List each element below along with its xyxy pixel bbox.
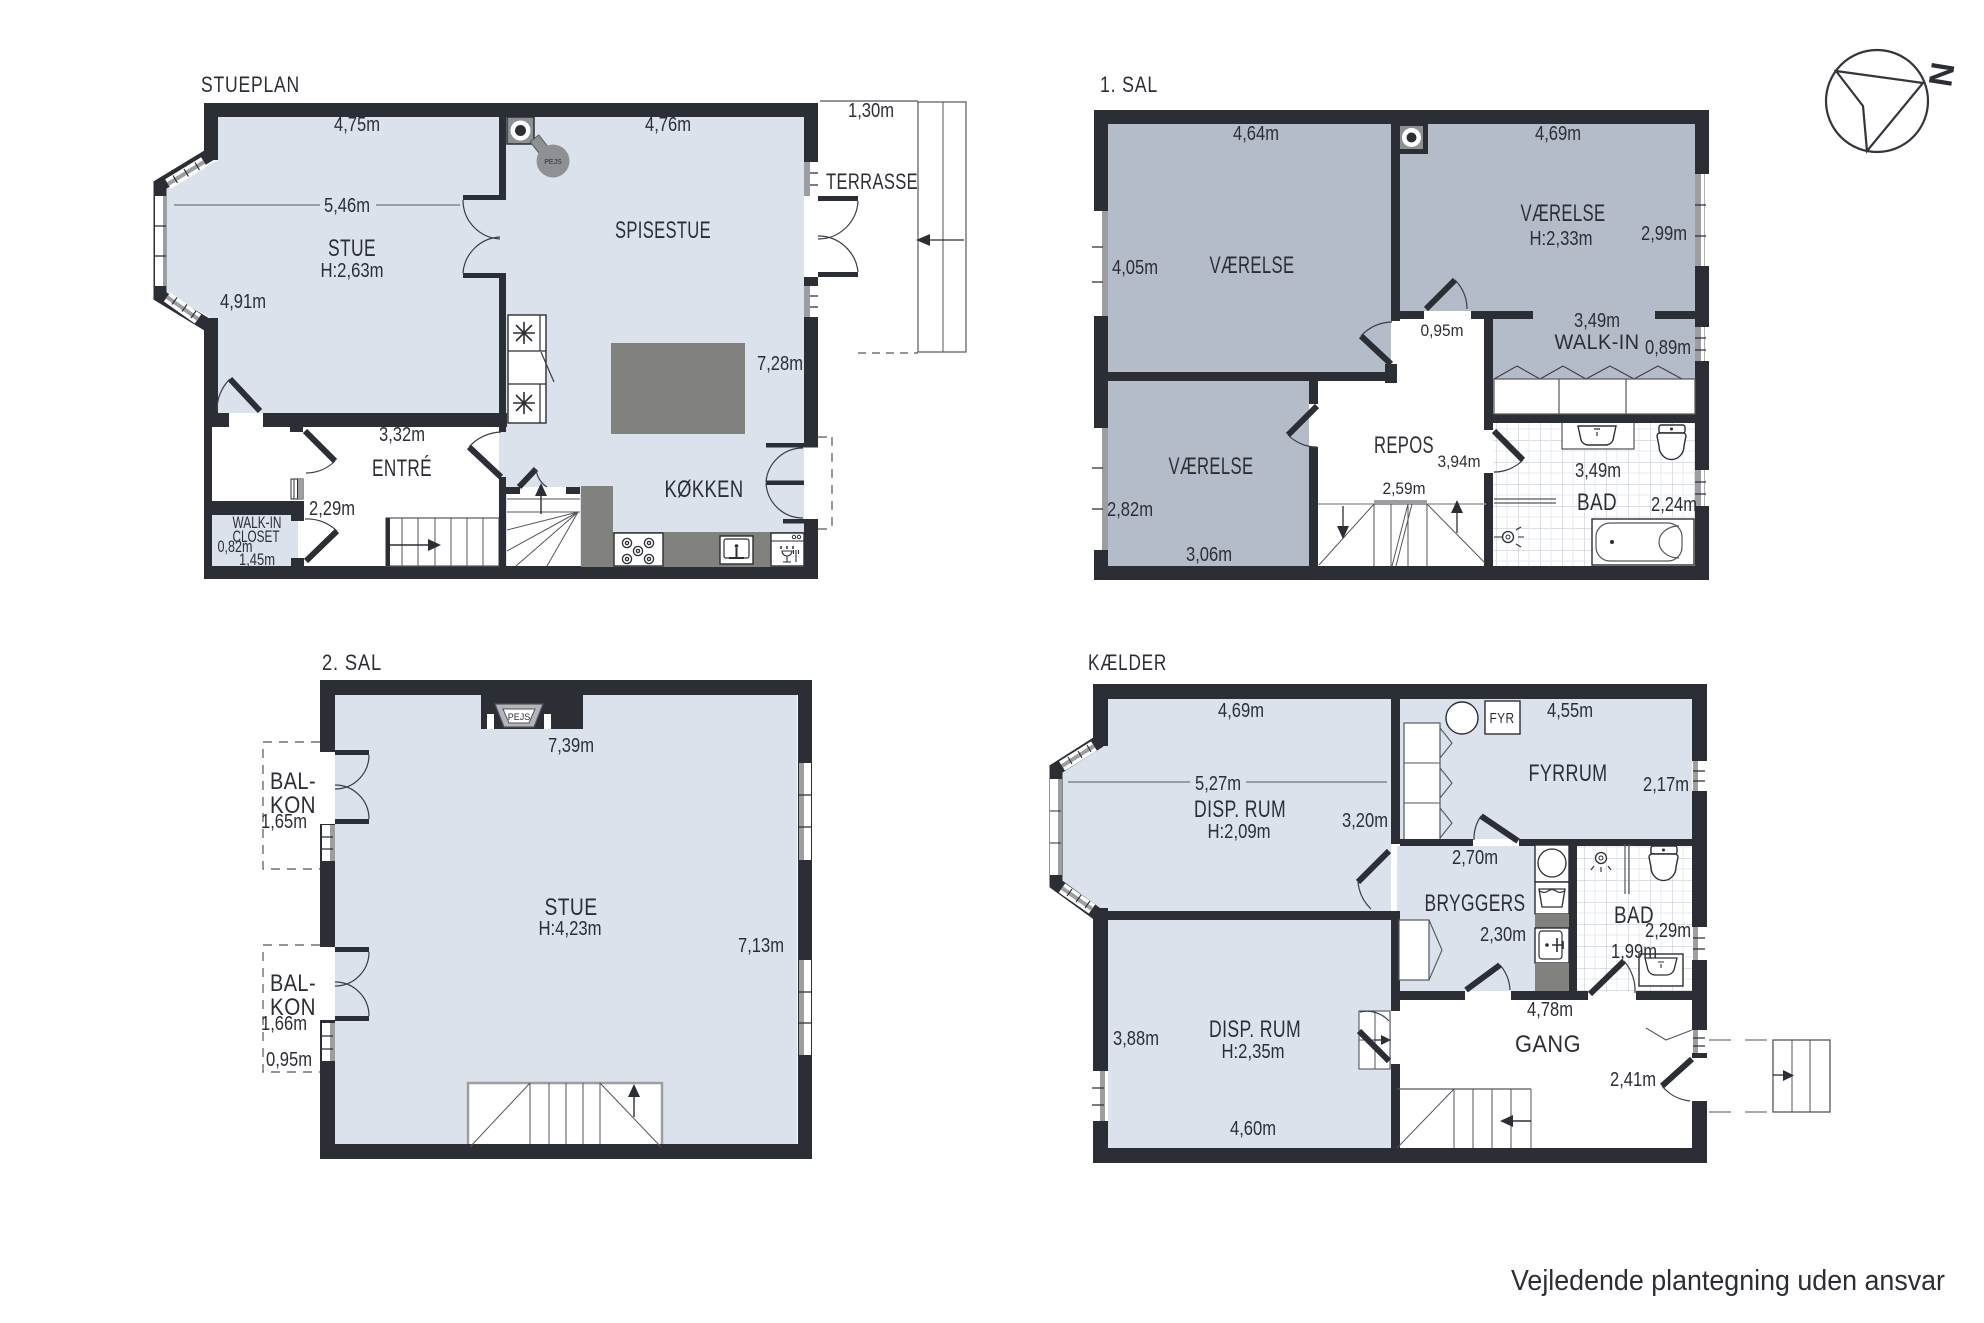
svg-text:2,17m: 2,17m xyxy=(1643,774,1689,796)
svg-text:3,88m: 3,88m xyxy=(1113,1028,1159,1050)
svg-text:4,69m: 4,69m xyxy=(1218,700,1264,722)
svg-text:4,91m: 4,91m xyxy=(220,291,266,313)
svg-text:H:2,35m: H:2,35m xyxy=(1222,1041,1285,1063)
svg-text:Vejledende plantegning uden an: Vejledende plantegning uden ansvar xyxy=(1511,1265,1945,1297)
svg-text:4,76m: 4,76m xyxy=(645,114,691,136)
svg-text:SPISESTUE: SPISESTUE xyxy=(615,217,711,244)
svg-text:0,95m: 0,95m xyxy=(266,1049,312,1071)
svg-text:2,82m: 2,82m xyxy=(1107,499,1153,521)
svg-text:4,69m: 4,69m xyxy=(1535,123,1581,145)
svg-text:1,45m: 1,45m xyxy=(239,550,275,569)
svg-text:1,66m: 1,66m xyxy=(261,1013,307,1035)
svg-text:2,29m: 2,29m xyxy=(1645,920,1691,942)
svg-text:H:2,09m: H:2,09m xyxy=(1208,821,1271,843)
svg-text:1,65m: 1,65m xyxy=(261,811,307,833)
svg-text:WALK-IN: WALK-IN xyxy=(1555,331,1640,354)
svg-text:3,20m: 3,20m xyxy=(1342,810,1388,832)
svg-text:VÆRELSE: VÆRELSE xyxy=(1169,453,1254,480)
svg-text:4,75m: 4,75m xyxy=(334,114,380,136)
svg-text:FYR: FYR xyxy=(1490,710,1515,727)
svg-text:3,49m: 3,49m xyxy=(1575,460,1621,482)
svg-text:5,46m: 5,46m xyxy=(324,195,370,217)
svg-text:1,30m: 1,30m xyxy=(848,100,894,122)
svg-text:BRYGGERS: BRYGGERS xyxy=(1425,890,1526,917)
svg-text:STUE: STUE xyxy=(328,235,376,262)
svg-text:0,89m: 0,89m xyxy=(1645,337,1691,359)
svg-text:H:2,63m: H:2,63m xyxy=(321,260,384,282)
svg-text:TERRASSE: TERRASSE xyxy=(826,169,918,194)
svg-text:ENTRÉ: ENTRÉ xyxy=(372,455,432,482)
svg-text:DISP. RUM: DISP. RUM xyxy=(1194,796,1286,823)
svg-text:3,94m: 3,94m xyxy=(1438,452,1481,471)
svg-text:2,30m: 2,30m xyxy=(1480,924,1526,946)
svg-text:H:2,33m: H:2,33m xyxy=(1530,228,1593,250)
svg-text:STUEPLAN: STUEPLAN xyxy=(201,72,300,97)
svg-text:2. SAL: 2. SAL xyxy=(322,650,382,675)
svg-text:1,99m: 1,99m xyxy=(1611,941,1657,963)
svg-text:2,99m: 2,99m xyxy=(1641,223,1687,245)
svg-text:KÆLDER: KÆLDER xyxy=(1088,650,1167,675)
svg-text:KØKKEN: KØKKEN xyxy=(665,476,744,503)
svg-text:4,64m: 4,64m xyxy=(1233,123,1279,145)
svg-text:GANG: GANG xyxy=(1515,1031,1581,1058)
svg-text:BAL-: BAL- xyxy=(270,970,316,997)
svg-text:4,55m: 4,55m xyxy=(1547,700,1593,722)
svg-text:H:4,23m: H:4,23m xyxy=(539,918,602,940)
svg-text:5,27m: 5,27m xyxy=(1195,773,1241,795)
svg-text:STUE: STUE xyxy=(545,894,598,921)
svg-text:7,13m: 7,13m xyxy=(738,935,784,957)
svg-text:0,95m: 0,95m xyxy=(1421,321,1464,340)
svg-text:VÆRELSE: VÆRELSE xyxy=(1210,252,1295,279)
svg-text:2,29m: 2,29m xyxy=(309,498,355,520)
svg-text:3,49m: 3,49m xyxy=(1574,310,1620,332)
svg-text:7,28m: 7,28m xyxy=(757,353,803,375)
svg-text:4,78m: 4,78m xyxy=(1527,999,1573,1021)
svg-text:7,39m: 7,39m xyxy=(548,735,594,757)
svg-text:REPOS: REPOS xyxy=(1374,432,1434,459)
svg-text:DISP. RUM: DISP. RUM xyxy=(1209,1016,1301,1043)
svg-text:2,24m: 2,24m xyxy=(1651,494,1697,516)
svg-text:2,70m: 2,70m xyxy=(1452,847,1498,869)
svg-text:PEJS: PEJS xyxy=(508,712,531,722)
svg-text:FYRRUM: FYRRUM xyxy=(1529,760,1608,787)
svg-text:2,59m: 2,59m xyxy=(1383,479,1426,498)
svg-text:4,60m: 4,60m xyxy=(1230,1118,1276,1140)
svg-text:PEJS: PEJS xyxy=(544,159,562,166)
svg-text:4,05m: 4,05m xyxy=(1112,257,1158,279)
svg-text:3,32m: 3,32m xyxy=(379,424,425,446)
svg-text:BAD: BAD xyxy=(1577,489,1617,516)
svg-text:3,06m: 3,06m xyxy=(1186,544,1232,566)
svg-text:BAL-: BAL- xyxy=(270,768,316,795)
svg-text:VÆRELSE: VÆRELSE xyxy=(1521,200,1606,227)
svg-text:1. SAL: 1. SAL xyxy=(1100,72,1158,97)
svg-text:2,41m: 2,41m xyxy=(1610,1069,1656,1091)
